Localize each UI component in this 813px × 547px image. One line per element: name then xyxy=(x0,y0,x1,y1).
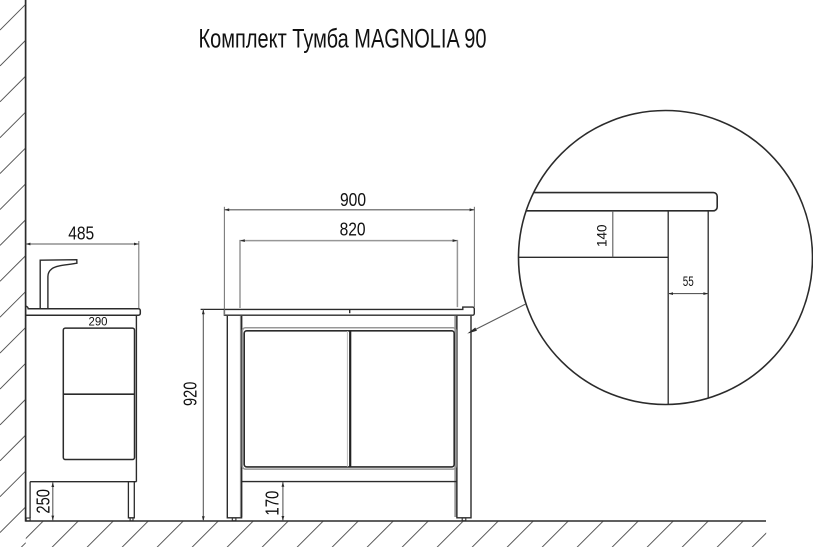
svg-text:485: 485 xyxy=(68,223,94,243)
svg-text:170: 170 xyxy=(262,491,282,516)
svg-text:55: 55 xyxy=(683,273,694,289)
svg-text:900: 900 xyxy=(340,190,366,210)
svg-text:820: 820 xyxy=(340,220,366,240)
svg-text:250: 250 xyxy=(33,489,53,514)
svg-text:140: 140 xyxy=(593,224,609,247)
svg-text:Комплект Тумба MAGNOLIA 90: Комплект Тумба MAGNOLIA 90 xyxy=(199,24,487,54)
svg-text:290: 290 xyxy=(89,317,108,329)
svg-text:920: 920 xyxy=(180,382,200,406)
